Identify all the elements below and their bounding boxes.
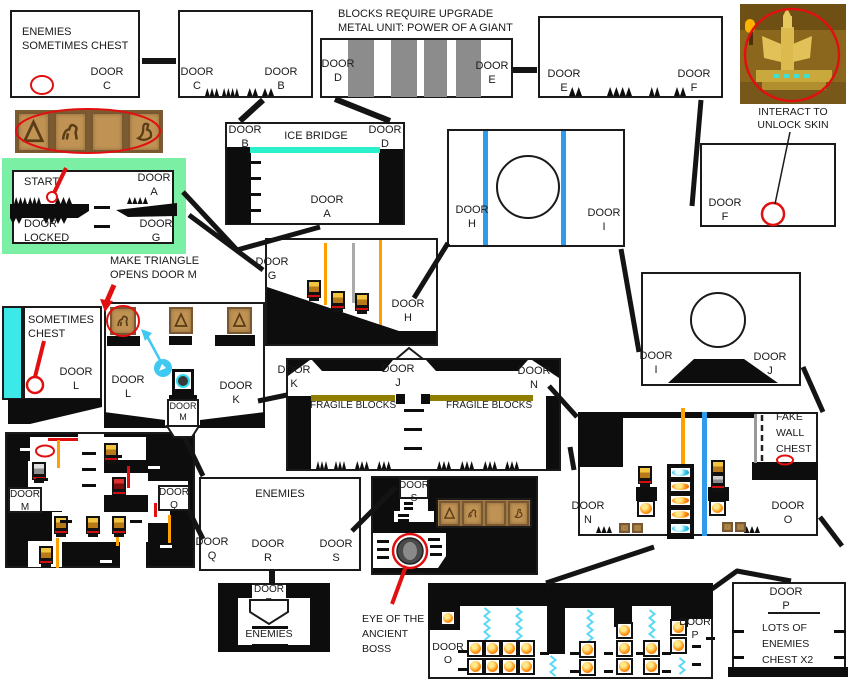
orange-orb-icon	[619, 661, 630, 672]
glyph-block-mini	[619, 523, 630, 533]
chest-base	[56, 534, 66, 537]
ledge	[404, 428, 422, 431]
pedestal-dot	[794, 74, 799, 78]
ledge	[251, 209, 261, 212]
glyph-block-beast	[54, 112, 87, 152]
orange-orb-icon	[582, 662, 593, 673]
glyph-block-triangle	[17, 112, 50, 152]
note-interact-skin: INTERACT TO UNLOCK SKIN	[743, 106, 843, 132]
glyph-block-bird	[508, 501, 529, 526]
glyph-block-beast	[110, 307, 136, 335]
ledge	[36, 478, 48, 481]
door-label-n: DOOR N	[570, 500, 606, 528]
maze-red-laser	[154, 503, 157, 517]
beast-glyph-icon	[132, 116, 157, 148]
chest-base	[640, 484, 650, 487]
fake-wall-base	[752, 462, 818, 480]
ledge	[570, 670, 579, 673]
chest-lid	[112, 477, 126, 491]
door-label-l: DOOR L	[108, 374, 148, 402]
fragile-center-block	[396, 394, 405, 404]
orb-orange	[669, 494, 692, 507]
chest-room-slope	[8, 399, 102, 424]
chest-drawer	[711, 460, 725, 492]
ice-column-left	[227, 147, 251, 224]
note-lots-of-enemies: LOTS OF ENEMIES CHEST X2	[762, 621, 813, 668]
door-label-a: DOOR A	[307, 194, 347, 222]
beast-glyph-icon	[114, 311, 132, 331]
chest-lid	[355, 293, 369, 307]
glyph-block-mini	[722, 522, 733, 532]
pedestal-dot	[774, 74, 779, 78]
door-label-d: DOOR D	[320, 58, 356, 86]
beast-glyph-icon	[726, 526, 729, 528]
doorr-wall	[218, 583, 238, 652]
orb-orange	[440, 610, 456, 626]
triangle-glyph-icon	[443, 505, 456, 522]
chest-lid	[112, 516, 126, 530]
fragile-center-block	[421, 394, 430, 404]
gh-orange-line	[379, 240, 382, 330]
maze-orange-line	[56, 538, 59, 568]
door-label-k: DOOR K	[276, 364, 312, 392]
ledge	[404, 409, 424, 412]
chest-lid	[54, 516, 68, 530]
connector	[621, 249, 639, 352]
ledge	[834, 630, 846, 633]
ledge	[458, 668, 467, 671]
blue-laser	[561, 131, 566, 245]
glyph-block-blank	[485, 501, 506, 526]
note-enemies-qrs: ENEMIES	[230, 488, 330, 502]
orange-orb-icon	[619, 643, 630, 654]
door-label-i: DOOR I	[638, 350, 674, 378]
orb-orange	[616, 622, 633, 639]
beast-glyph-icon	[466, 505, 479, 522]
orange-orb-icon	[487, 643, 498, 654]
maze-corridor	[104, 473, 148, 495]
ledge	[251, 177, 261, 180]
ledge	[404, 507, 413, 510]
door-label-o: DOOR O	[770, 500, 806, 528]
chest-lid	[39, 546, 53, 560]
cyan-orb-icon	[672, 469, 689, 476]
fragile-column-left	[288, 396, 311, 469]
triangle-platform	[107, 336, 140, 346]
no-blue-line	[702, 412, 707, 536]
glyph-block-blank	[91, 112, 124, 152]
ledge	[377, 556, 389, 559]
orb-orange	[616, 658, 633, 675]
chest-base	[106, 461, 116, 464]
beast-glyph-icon	[58, 116, 83, 148]
ledge	[82, 452, 96, 455]
chest-lid	[711, 460, 725, 474]
door-label-f: DOOR F	[676, 68, 712, 96]
chest-base	[713, 489, 723, 492]
orange-orb-icon	[521, 661, 532, 672]
ledge	[428, 538, 440, 541]
door-label-j: DOOR J	[752, 351, 788, 379]
connector	[570, 447, 574, 470]
no-orange-line	[681, 408, 685, 468]
chest-gold	[355, 293, 369, 314]
ice-column-right	[379, 149, 403, 224]
chest-lid	[32, 462, 46, 476]
ledge	[377, 548, 389, 551]
chest-base	[357, 311, 367, 314]
ledge	[251, 161, 261, 164]
orb-orange	[643, 658, 660, 675]
chest-lid	[331, 291, 345, 305]
note-fragile-blocks-left: FRAGILE BLOCKS	[310, 400, 396, 413]
door-label-q: DOOR Q	[158, 487, 190, 512]
note-ice-bridge: ICE BRIDGE	[258, 130, 374, 144]
door-label-j: DOOR J	[380, 363, 416, 391]
door-label-c: DOOR C	[86, 66, 128, 94]
orb-orange	[467, 640, 484, 657]
connector	[803, 367, 823, 412]
door-label-r: DOOR R	[251, 584, 287, 609]
glyph-block-mini	[632, 523, 643, 533]
orb-orange	[643, 640, 660, 657]
note-fake-wall-chest: FAKE WALL CHEST	[776, 410, 812, 457]
connector	[335, 99, 390, 121]
ledge	[251, 193, 261, 196]
ice-bridge-bar	[250, 147, 380, 153]
door-label-q: DOOR Q	[194, 536, 230, 564]
beast-glyph-icon	[739, 526, 742, 528]
totem-inner	[175, 372, 191, 389]
gh-orange-line	[324, 243, 327, 305]
note-eye-ancient-boss: EYE OF THE ANCIENT BOSS	[362, 612, 424, 658]
triangle-platform	[169, 336, 192, 345]
orange-orb-icon	[470, 643, 481, 654]
ledge	[662, 670, 671, 673]
ledge	[377, 540, 389, 543]
orb-orange	[579, 641, 596, 658]
glyph-block-bird	[128, 112, 161, 152]
orb-orange	[709, 500, 726, 516]
ledge	[398, 514, 409, 517]
glyph-block-beast	[462, 501, 483, 526]
orb-orange	[637, 500, 655, 517]
maze-orange-line	[57, 440, 60, 468]
orb-orange	[484, 640, 501, 657]
orb-orange	[501, 640, 518, 657]
ledge	[834, 656, 846, 659]
note-enemies-sometimes-chest: ENEMIES SOMETIMES CHEST	[22, 26, 128, 54]
beast-glyph-icon	[623, 527, 626, 529]
door-label-k: DOOR K	[216, 380, 256, 408]
fragile-column-right	[546, 396, 559, 469]
door-label-d: DOOR D	[367, 124, 403, 152]
door-label-o: DOOR O	[430, 641, 466, 667]
door-label-f: DOOR F	[705, 197, 745, 225]
chest-base	[333, 309, 343, 312]
orb-orange	[579, 659, 596, 676]
doorr-wall	[238, 583, 252, 598]
chest-gold	[104, 443, 118, 464]
beast-glyph-icon	[636, 527, 639, 529]
chest-lid	[638, 466, 652, 480]
statue-body	[781, 27, 794, 74]
door-label-p: DOOR P	[768, 586, 804, 614]
note-door-locked: DOOR LOCKED	[24, 218, 69, 246]
door-label-a: DOOR A	[134, 172, 174, 200]
orange-orb-icon	[640, 503, 652, 514]
ledge	[112, 495, 124, 498]
door-label-h: DOOR H	[452, 204, 492, 232]
op-ceiling-right	[688, 583, 713, 619]
maze-orange-line	[168, 515, 171, 543]
note-sometimes-chest: SOMETIMES CHEST	[28, 314, 94, 342]
orange-orb-icon	[504, 661, 515, 672]
ledge	[430, 553, 442, 556]
doorr-wall	[310, 583, 330, 652]
orb-orange	[467, 658, 484, 675]
cyan-wall-strip	[2, 306, 23, 400]
chest-base	[114, 534, 124, 537]
door-label-g: DOOR G	[138, 218, 174, 246]
orange-orb-icon	[672, 483, 689, 490]
ledge	[692, 663, 701, 666]
ledge-white	[100, 560, 112, 563]
door-label-b: DOOR B	[260, 66, 302, 94]
door-label-p: DOOR P	[678, 616, 712, 642]
chest-base	[41, 564, 51, 567]
chest-gold	[39, 546, 53, 567]
door-label-i: DOOR I	[584, 207, 624, 235]
triangle-glyph-icon	[231, 311, 248, 330]
glyph-block-triangle	[227, 307, 252, 334]
ledge	[398, 519, 409, 522]
statue-head	[783, 16, 792, 28]
fake-wall-gray-line	[754, 414, 757, 463]
orb-orange	[484, 658, 501, 675]
orange-orb-icon	[582, 644, 593, 655]
orb-orange	[616, 640, 633, 657]
note-start: START	[24, 176, 59, 190]
chest-gold	[638, 466, 652, 487]
ledge-white	[20, 448, 32, 451]
orb-orange	[518, 658, 535, 675]
connector	[240, 100, 263, 121]
ledge	[732, 630, 744, 633]
orb-cyan	[669, 522, 692, 535]
start-gap-ledge	[94, 206, 110, 209]
ledge	[570, 652, 579, 655]
orange-orb-icon	[672, 497, 689, 504]
connector	[820, 517, 842, 546]
orange-orb-icon	[646, 661, 657, 672]
ledge	[430, 545, 442, 548]
ledge-white	[160, 545, 172, 548]
doorr-wall	[286, 583, 310, 598]
maze-corridor	[120, 542, 146, 568]
door-label-g: DOOR G	[252, 256, 292, 284]
maze-corridor	[62, 493, 78, 513]
ledge	[82, 468, 96, 471]
orange-orb-icon	[470, 661, 481, 672]
orange-orb-icon	[504, 643, 515, 654]
ledge-white	[148, 466, 160, 469]
chest-gold	[331, 291, 345, 312]
ledge	[130, 520, 142, 523]
no-pedestal	[636, 487, 657, 501]
op-hanging-column	[547, 583, 565, 654]
cyan-orb-icon	[672, 525, 689, 532]
orb-orange	[669, 508, 692, 521]
orange-orb-icon	[712, 503, 723, 513]
ledge-white	[136, 534, 148, 537]
ledge	[604, 652, 613, 655]
pedestal-dot	[784, 74, 789, 78]
maze-red-beam	[48, 438, 78, 441]
triangle-glyph-icon	[21, 116, 46, 148]
orb-orange	[518, 640, 535, 657]
metal-block	[424, 40, 447, 97]
door-label-e: DOOR E	[546, 68, 582, 96]
door-label-n: DOOR N	[516, 365, 552, 393]
note-blocks-upgrade: BLOCKS REQUIRE UPGRADE METAL UNIT: POWER…	[338, 8, 513, 36]
connector	[546, 547, 654, 583]
orb-cyan	[669, 466, 692, 479]
orange-orb-icon	[521, 643, 532, 654]
chest-gold	[86, 516, 100, 537]
door-label-s: DOOR S	[318, 538, 354, 566]
door-label-m: DOOR M	[8, 489, 42, 514]
orange-orb-icon	[672, 511, 689, 518]
chest-gold	[112, 516, 126, 537]
door-label-l: DOOR L	[56, 366, 96, 394]
chest-gold	[307, 280, 321, 301]
p-info-bottom-strip	[728, 667, 848, 677]
orange-orb-icon	[619, 625, 630, 636]
door-label-h: DOOR H	[388, 298, 428, 326]
no-room-black-corner	[578, 412, 623, 467]
orb-orange	[501, 658, 518, 675]
note-enemies-doorr: ENEMIES	[239, 628, 299, 641]
beast-glyph-icon	[512, 505, 525, 522]
ledge	[110, 455, 122, 458]
door-label-s: DOOR S	[399, 480, 429, 505]
ledge	[732, 656, 744, 659]
glyph-block-mini	[735, 522, 746, 532]
start-gap-ledge	[94, 225, 110, 228]
chest-base	[309, 298, 319, 301]
ledge	[60, 520, 72, 523]
ledge	[692, 645, 701, 648]
ledge	[662, 652, 671, 655]
ledge	[404, 447, 422, 450]
metal-block	[391, 40, 417, 97]
chest-lid	[307, 280, 321, 294]
note-make-triangle: MAKE TRIANGLE OPENS DOOR M	[110, 255, 199, 283]
triangle-platform	[215, 335, 255, 346]
door-label-m: DOOR M	[168, 401, 198, 424]
ledge	[82, 484, 96, 487]
door-label-c: DOOR C	[176, 66, 218, 94]
door-label-e: DOOR E	[474, 60, 510, 88]
orb-orange	[669, 480, 692, 493]
glyph-block-triangle	[439, 501, 460, 526]
orange-orb-icon	[443, 613, 453, 623]
note-fragile-blocks-right: FRAGILE BLOCKS	[446, 400, 532, 413]
torch-flame	[745, 19, 755, 33]
chest-drawer	[711, 474, 725, 485]
chest-lid	[86, 516, 100, 530]
ledge	[252, 644, 288, 647]
orange-orb-icon	[487, 661, 498, 672]
door-label-r: DOOR R	[250, 538, 286, 566]
ledge	[636, 652, 645, 655]
statue-pedestal-base	[762, 82, 826, 90]
maze-red-laser	[127, 466, 130, 488]
ledge	[604, 670, 613, 673]
pedestal-dot	[804, 74, 809, 78]
red-arrow-shaft	[107, 285, 114, 301]
triangle-glyph-icon	[173, 311, 189, 330]
orange-orb-icon	[646, 643, 657, 654]
maze-corridor	[148, 511, 170, 523]
chest-base	[88, 534, 98, 537]
dungeon-map-canvas: ENEMIES SOMETIMES CHESTDOOR CDOOR CDOOR …	[0, 0, 850, 680]
no-room-ceiling	[620, 412, 755, 418]
ledge	[540, 652, 549, 655]
glyph-block-triangle	[169, 307, 193, 334]
